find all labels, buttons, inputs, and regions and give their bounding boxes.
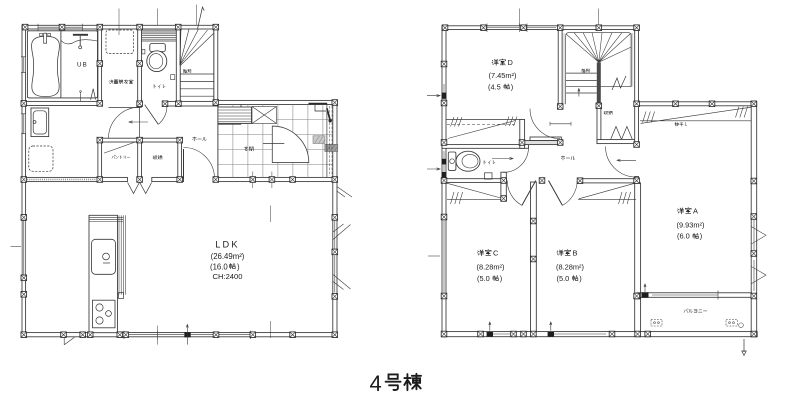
- svg-text:LDK: LDK: [215, 240, 239, 250]
- svg-text:D: D: [508, 58, 513, 67]
- svg-text:C: C: [493, 249, 499, 258]
- svg-text:(8.28m²): (8.28m²): [556, 263, 584, 272]
- svg-text:(6.0: (6.0: [677, 232, 690, 241]
- svg-text:(16.0: (16.0: [210, 262, 228, 271]
- svg-text:(9.93m²): (9.93m²): [677, 220, 705, 229]
- svg-text:A: A: [693, 207, 698, 216]
- svg-text:4: 4: [370, 371, 382, 396]
- svg-text:(5.0: (5.0: [557, 274, 570, 283]
- svg-text:(5.0: (5.0: [477, 274, 490, 283]
- svg-text:): ): [500, 274, 502, 283]
- svg-text:): ): [700, 232, 702, 241]
- svg-text:): ): [511, 82, 513, 91]
- svg-text:UB: UB: [77, 62, 88, 69]
- svg-text:CH:2400: CH:2400: [213, 272, 243, 281]
- svg-text:(4.5: (4.5: [488, 82, 501, 91]
- svg-text:): ): [579, 274, 581, 283]
- svg-text:): ): [237, 262, 240, 271]
- svg-text:(8.28m²): (8.28m²): [477, 263, 505, 272]
- svg-text:(26.49m²): (26.49m²): [211, 252, 245, 261]
- svg-text:B: B: [573, 249, 578, 258]
- svg-text:(7.45m²): (7.45m²): [489, 71, 517, 80]
